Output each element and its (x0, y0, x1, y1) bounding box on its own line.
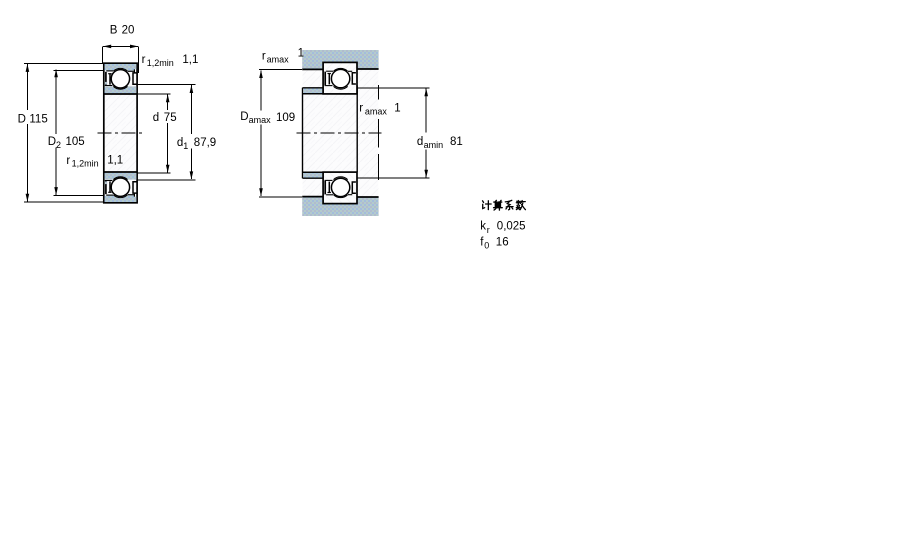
svg-text:r: r (66, 155, 70, 167)
svg-text:amax: amax (249, 115, 272, 125)
svg-text:d: d (417, 136, 423, 148)
svg-text:amax: amax (365, 107, 388, 117)
svg-text:r: r (359, 102, 363, 114)
svg-text:1: 1 (298, 48, 304, 60)
svg-text:0,025: 0,025 (497, 221, 526, 233)
svg-text:16: 16 (496, 236, 509, 248)
svg-text:115: 115 (29, 113, 47, 125)
svg-text:r: r (262, 50, 266, 62)
svg-text:81: 81 (450, 136, 463, 148)
svg-text:1: 1 (183, 141, 188, 151)
svg-text:r: r (142, 54, 146, 66)
svg-text:D: D (48, 136, 56, 148)
svg-text:D: D (18, 113, 26, 125)
svg-text:1,1: 1,1 (107, 154, 123, 166)
svg-text:d: d (153, 112, 159, 124)
svg-text:0: 0 (484, 241, 489, 251)
svg-text:D: D (240, 111, 248, 123)
svg-text:1: 1 (394, 102, 400, 114)
svg-text:amin: amin (424, 140, 444, 150)
svg-text:87,9: 87,9 (194, 137, 216, 149)
svg-text:r: r (487, 225, 490, 235)
svg-text:amax: amax (267, 54, 290, 64)
svg-text:k: k (480, 221, 486, 233)
svg-text:B: B (110, 25, 118, 37)
svg-text:2: 2 (56, 140, 61, 150)
svg-text:1,2min: 1,2min (147, 58, 174, 68)
svg-text:1,1: 1,1 (182, 54, 198, 66)
svg-text:20: 20 (122, 25, 135, 37)
svg-text:75: 75 (164, 112, 177, 124)
svg-text:1,2min: 1,2min (72, 159, 99, 169)
svg-text:109: 109 (276, 112, 295, 124)
svg-text:105: 105 (66, 136, 85, 148)
